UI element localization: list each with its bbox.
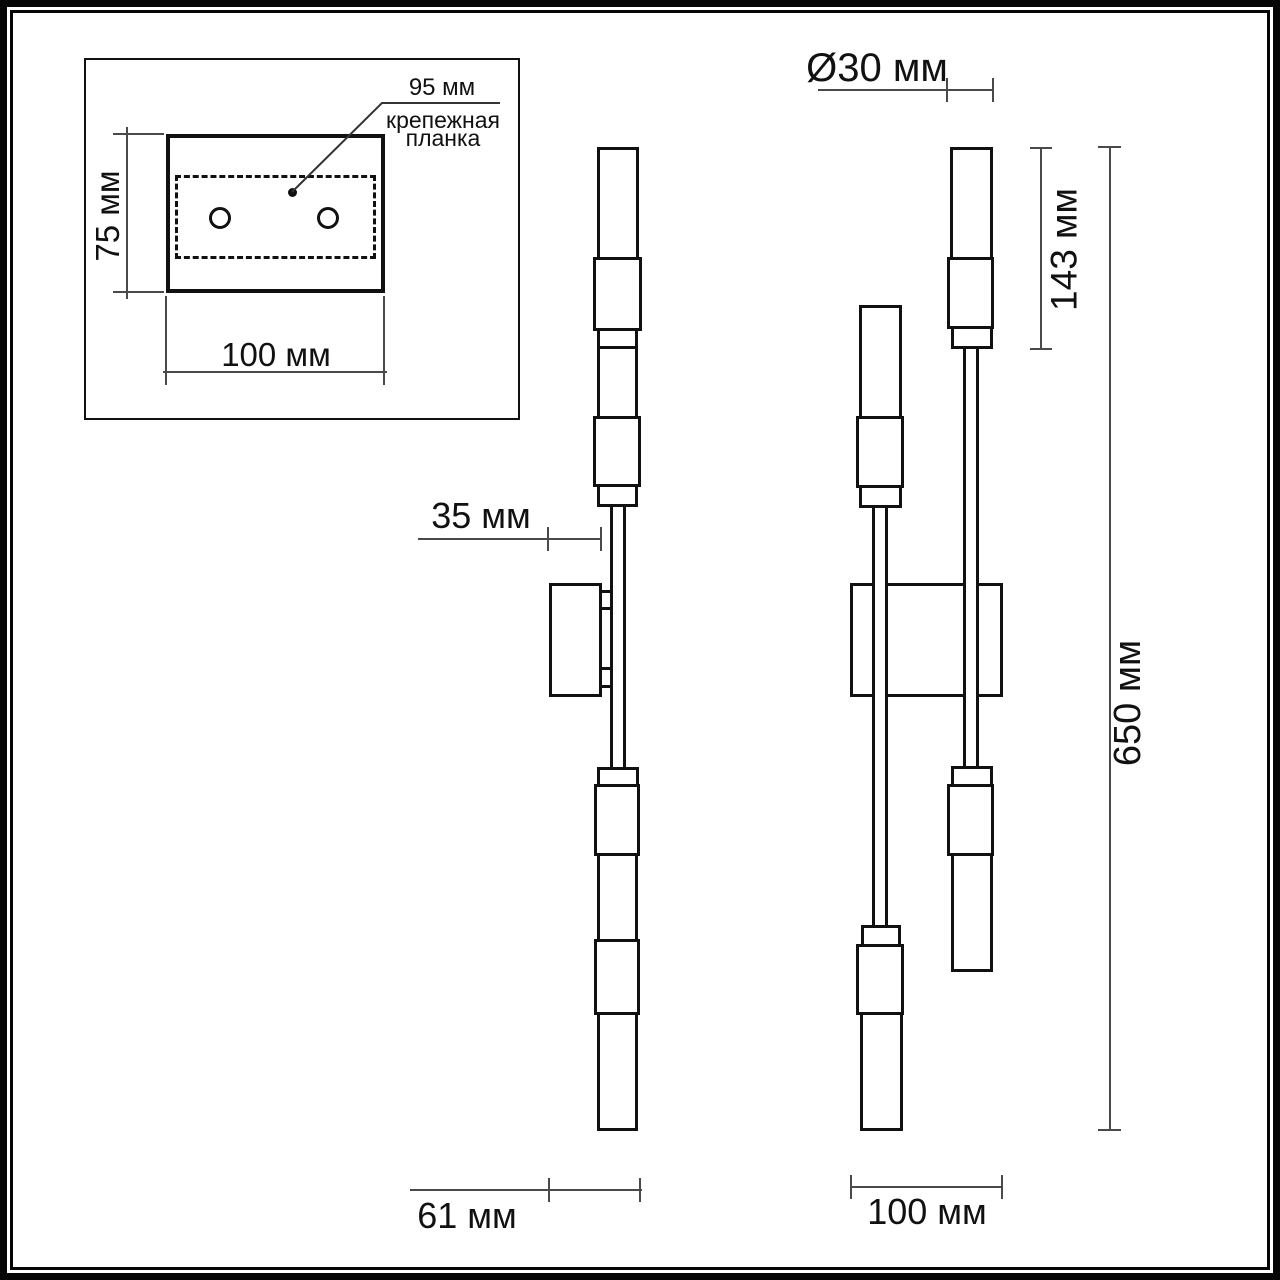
dim-75-line [126, 127, 128, 299]
glass-tube-low-front-right [951, 853, 993, 972]
cap-upper-side [597, 484, 638, 507]
wall-box-side [549, 583, 602, 697]
glass-tube-top-front-right [950, 147, 993, 260]
socket-3-side [594, 784, 640, 856]
total-height-label: 650 мм [1109, 623, 1147, 783]
shade-height-label: 143 мм [1046, 170, 1083, 330]
rod-right-front [963, 346, 979, 772]
dim-61-line [410, 1189, 642, 1191]
technical-drawing-canvas: 95 мм крепежная планка 75 мм 100 мм 35 м… [0, 0, 1280, 1280]
dim-75-ext-bottom [113, 291, 164, 293]
socket-2-side [593, 416, 641, 487]
socket2-front-right [947, 784, 994, 856]
cap-front-right [951, 326, 993, 349]
dim-650-tick-bottom [1098, 1129, 1121, 1131]
screw-hole-right [317, 207, 339, 229]
dim-61-tick-left [548, 1178, 550, 1202]
cap-front-left [859, 485, 902, 508]
glass-tube-top-front-left [859, 305, 902, 419]
dim-100f-line [851, 1186, 1003, 1188]
glass-tube-mid-side [597, 346, 638, 419]
socket-front-left [856, 416, 904, 488]
box-width-label: 100 мм [847, 1194, 1007, 1230]
socket-1-side [593, 257, 642, 331]
dim-143-tick-top [1030, 147, 1052, 149]
dim-30-tick-right [992, 78, 994, 102]
dim-75-ext-top [113, 133, 164, 135]
socket-front-right [947, 257, 994, 329]
glass-tube-low-front-left [860, 1012, 903, 1131]
rod-side [610, 504, 626, 770]
dim-650-tick-top [1098, 146, 1121, 148]
leader-dot [288, 188, 297, 197]
rod-left-front [872, 505, 888, 933]
dim-35-tick-right [600, 527, 602, 551]
screw-hole-left [209, 207, 231, 229]
plate-spacing-label: 95 мм [383, 76, 501, 100]
dim-143-line [1040, 148, 1042, 350]
plate-width-label: 100 мм [206, 338, 346, 371]
dim-143-tick-bottom [1030, 348, 1052, 350]
glass-tube-bottom-side [597, 1012, 638, 1131]
glass-tube-top-side [597, 147, 639, 260]
plate-height-label: 75 мм [91, 161, 125, 271]
box-depth-label: 35 мм [411, 498, 551, 534]
tube-diameter-label: Ø30 мм [797, 48, 957, 88]
total-depth-label: 61 мм [397, 1198, 537, 1234]
dim-35-line [418, 538, 602, 540]
mounting-bar-dashed-rect [175, 175, 376, 259]
dim-61-tick-right [639, 1178, 641, 1202]
socket2-front-left [856, 944, 904, 1015]
socket-4-side [594, 939, 640, 1015]
glass-tube-low-side [597, 853, 638, 942]
mounting-bar-caption-line2: планка [373, 127, 513, 150]
